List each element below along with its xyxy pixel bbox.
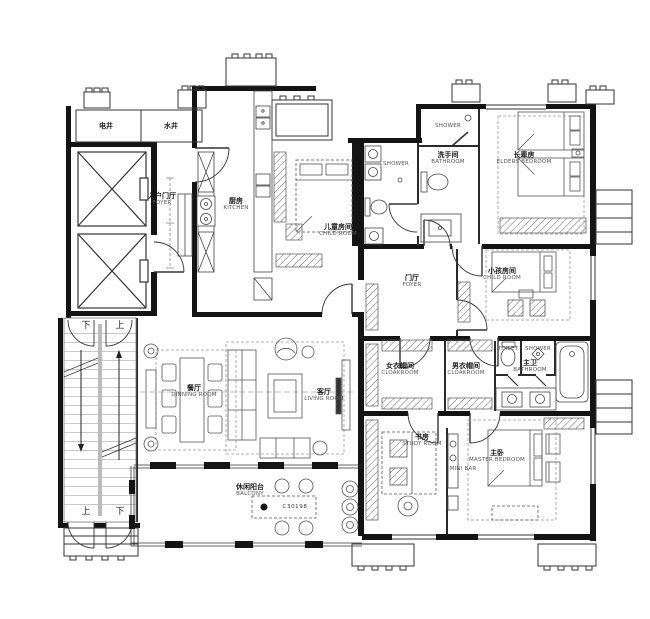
- child-room-1-door: [322, 284, 352, 314]
- floor-plan: 电井水井下上上下入户门厅FOYER厨房KITCHEN儿童房间CHILD ROOM…: [0, 0, 650, 619]
- ac-platform-2: [596, 380, 632, 434]
- stove: [197, 196, 215, 226]
- ac-platform-1: [596, 190, 632, 244]
- shower-compartment-door: [452, 132, 468, 146]
- dining-room-furniture: [140, 344, 356, 451]
- round-chair: [275, 338, 297, 360]
- study-room-door: [408, 413, 438, 443]
- elders-bedroom-furniture: [498, 112, 584, 234]
- balcony: [129, 462, 362, 548]
- child-room-1-furniture: [296, 160, 352, 232]
- entry-foyer-furniture: [166, 178, 192, 268]
- mini-bar: [448, 434, 458, 510]
- child-room-2-furniture: [486, 250, 570, 320]
- double-vanity: [496, 388, 556, 410]
- toilet-compartment-door: [508, 376, 518, 386]
- elders-bed-2: [518, 158, 584, 196]
- entry-porch: [64, 528, 138, 560]
- kitchen-door: [195, 148, 229, 182]
- balcony-plants: [342, 481, 358, 533]
- vanity-1: [421, 214, 461, 242]
- master-bed: [488, 430, 542, 486]
- toilet-1: [365, 198, 387, 216]
- utility-shafts: [76, 110, 202, 142]
- stool: [313, 441, 327, 455]
- shower-2-compartment-door: [536, 376, 546, 386]
- fridge: [254, 278, 272, 300]
- kitchen-sink: [256, 106, 270, 129]
- sofa-small: [260, 438, 310, 458]
- toilet-2: [421, 172, 448, 192]
- study-room-furniture: [382, 432, 436, 516]
- coffee-table: [268, 374, 302, 418]
- bathroom-1-fixtures: [421, 115, 471, 242]
- sideboard: [146, 370, 156, 428]
- elevator-2: [78, 234, 148, 308]
- bottom-parapet-2: [538, 544, 596, 570]
- tv-console: [336, 360, 350, 430]
- sofa-large: [228, 350, 256, 440]
- elevator-1: [78, 152, 148, 226]
- bathtub: [556, 342, 588, 402]
- reading-chair: [398, 496, 418, 516]
- plant-pot-1: [144, 344, 158, 358]
- shower-room-door: [389, 204, 417, 232]
- windows: [392, 103, 597, 541]
- side-table: [302, 346, 314, 358]
- elevators: [78, 152, 148, 308]
- shower-room-fixtures: [365, 146, 402, 244]
- living-room-furniture: [226, 338, 350, 458]
- entry-door: [154, 242, 184, 272]
- elders-bed-1: [518, 112, 584, 150]
- toilet-3: [501, 342, 515, 366]
- lounge-chair-1: [546, 434, 560, 454]
- bottom-parapet-1: [352, 544, 414, 570]
- lounge-chair-2: [546, 462, 560, 482]
- kitchen-fixtures: [197, 91, 272, 300]
- shower-head: [532, 348, 544, 360]
- master-bathroom-fixtures: [496, 342, 588, 410]
- partitions: [136, 109, 556, 534]
- sink-1: [365, 228, 383, 244]
- master-bedroom-furniture: [468, 420, 560, 520]
- balcony-table-set: [252, 479, 316, 535]
- child-bed-2: [492, 252, 556, 292]
- staircase: [64, 318, 136, 522]
- master-bedroom-door: [470, 413, 500, 443]
- floor-plan-drawing: [0, 0, 650, 619]
